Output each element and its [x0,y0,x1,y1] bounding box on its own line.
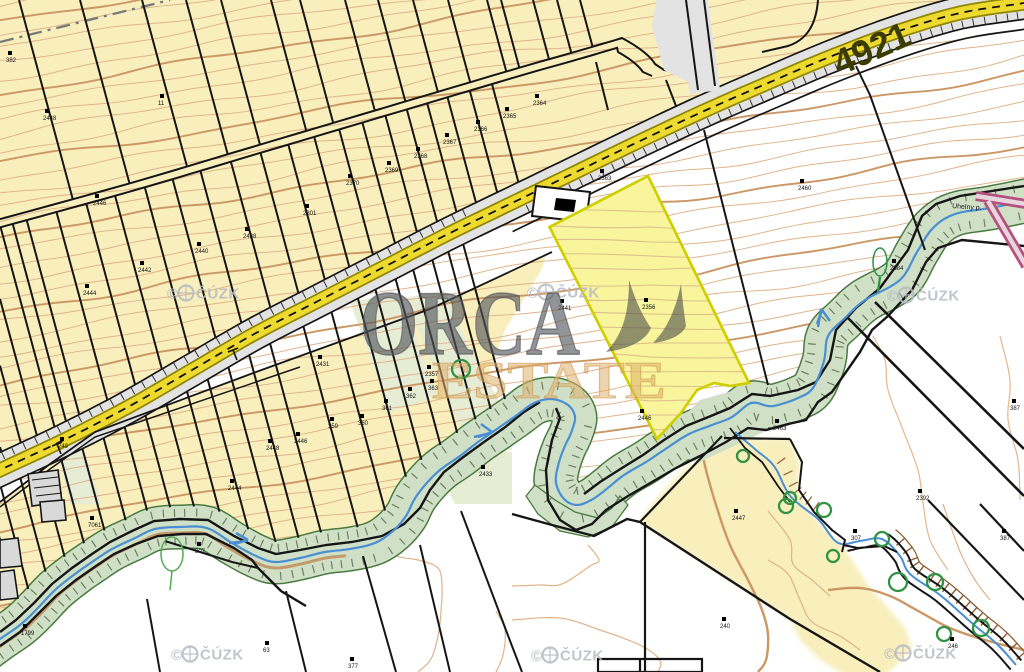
svg-text:7061: 7061 [88,523,102,529]
svg-text:ČÚZK: ČÚZK [913,645,957,663]
svg-text:2448: 2448 [266,446,280,452]
svg-text:387: 387 [1000,536,1011,542]
svg-text:2438: 2438 [243,234,257,240]
svg-text:2442: 2442 [138,268,152,274]
svg-text:2356: 2356 [642,305,656,311]
svg-text:377: 377 [348,664,359,670]
svg-text:361: 361 [382,406,393,412]
svg-text:©: © [531,648,542,665]
svg-text:240: 240 [720,624,731,630]
svg-text:2363: 2363 [598,176,612,182]
svg-text:2463: 2463 [773,426,787,432]
svg-text:2884: 2884 [890,266,904,272]
svg-text:2446: 2446 [638,416,652,422]
svg-text:2368: 2368 [414,154,428,160]
svg-text:307: 307 [195,549,206,555]
svg-text:ESTATE: ESTATE [432,352,666,410]
svg-text:2433: 2433 [479,472,493,478]
svg-text:2369: 2369 [385,168,399,174]
svg-text:1799: 1799 [21,631,35,637]
svg-text:2366: 2366 [474,127,488,133]
svg-text:2447: 2447 [732,516,746,522]
svg-text:2367: 2367 [443,140,457,146]
svg-text:2364: 2364 [533,101,547,107]
svg-text:387: 387 [1010,406,1021,412]
svg-text:2365: 2365 [503,114,517,120]
svg-text:359: 359 [328,424,339,430]
svg-text:11: 11 [158,101,165,107]
svg-text:©: © [171,647,182,664]
svg-text:382: 382 [6,58,17,64]
svg-text:©: © [884,646,895,663]
svg-text:2448: 2448 [43,116,57,122]
svg-text:2301: 2301 [303,211,317,217]
svg-text:2446: 2446 [294,439,308,445]
svg-text:2460: 2460 [798,186,812,192]
svg-text:ČÚZK: ČÚZK [200,646,244,664]
svg-text:2392: 2392 [916,496,930,502]
svg-text:360: 360 [358,421,369,427]
svg-text:249: 249 [58,444,69,450]
svg-text:2440: 2440 [195,249,209,255]
svg-text:2446: 2446 [93,201,107,207]
svg-text:ČÚZK: ČÚZK [916,287,960,305]
svg-text:307: 307 [851,536,862,542]
svg-text:2444: 2444 [228,486,242,492]
svg-text:ČÚZK: ČÚZK [560,647,604,665]
svg-text:©: © [167,286,178,303]
svg-text:2370: 2370 [346,181,360,187]
svg-text:362: 362 [406,394,417,400]
svg-text:ČÚZK: ČÚZK [196,285,240,303]
svg-text:63: 63 [263,648,270,654]
svg-text:2431: 2431 [316,362,330,368]
svg-text:2444: 2444 [83,291,97,297]
svg-text:©: © [887,288,898,305]
